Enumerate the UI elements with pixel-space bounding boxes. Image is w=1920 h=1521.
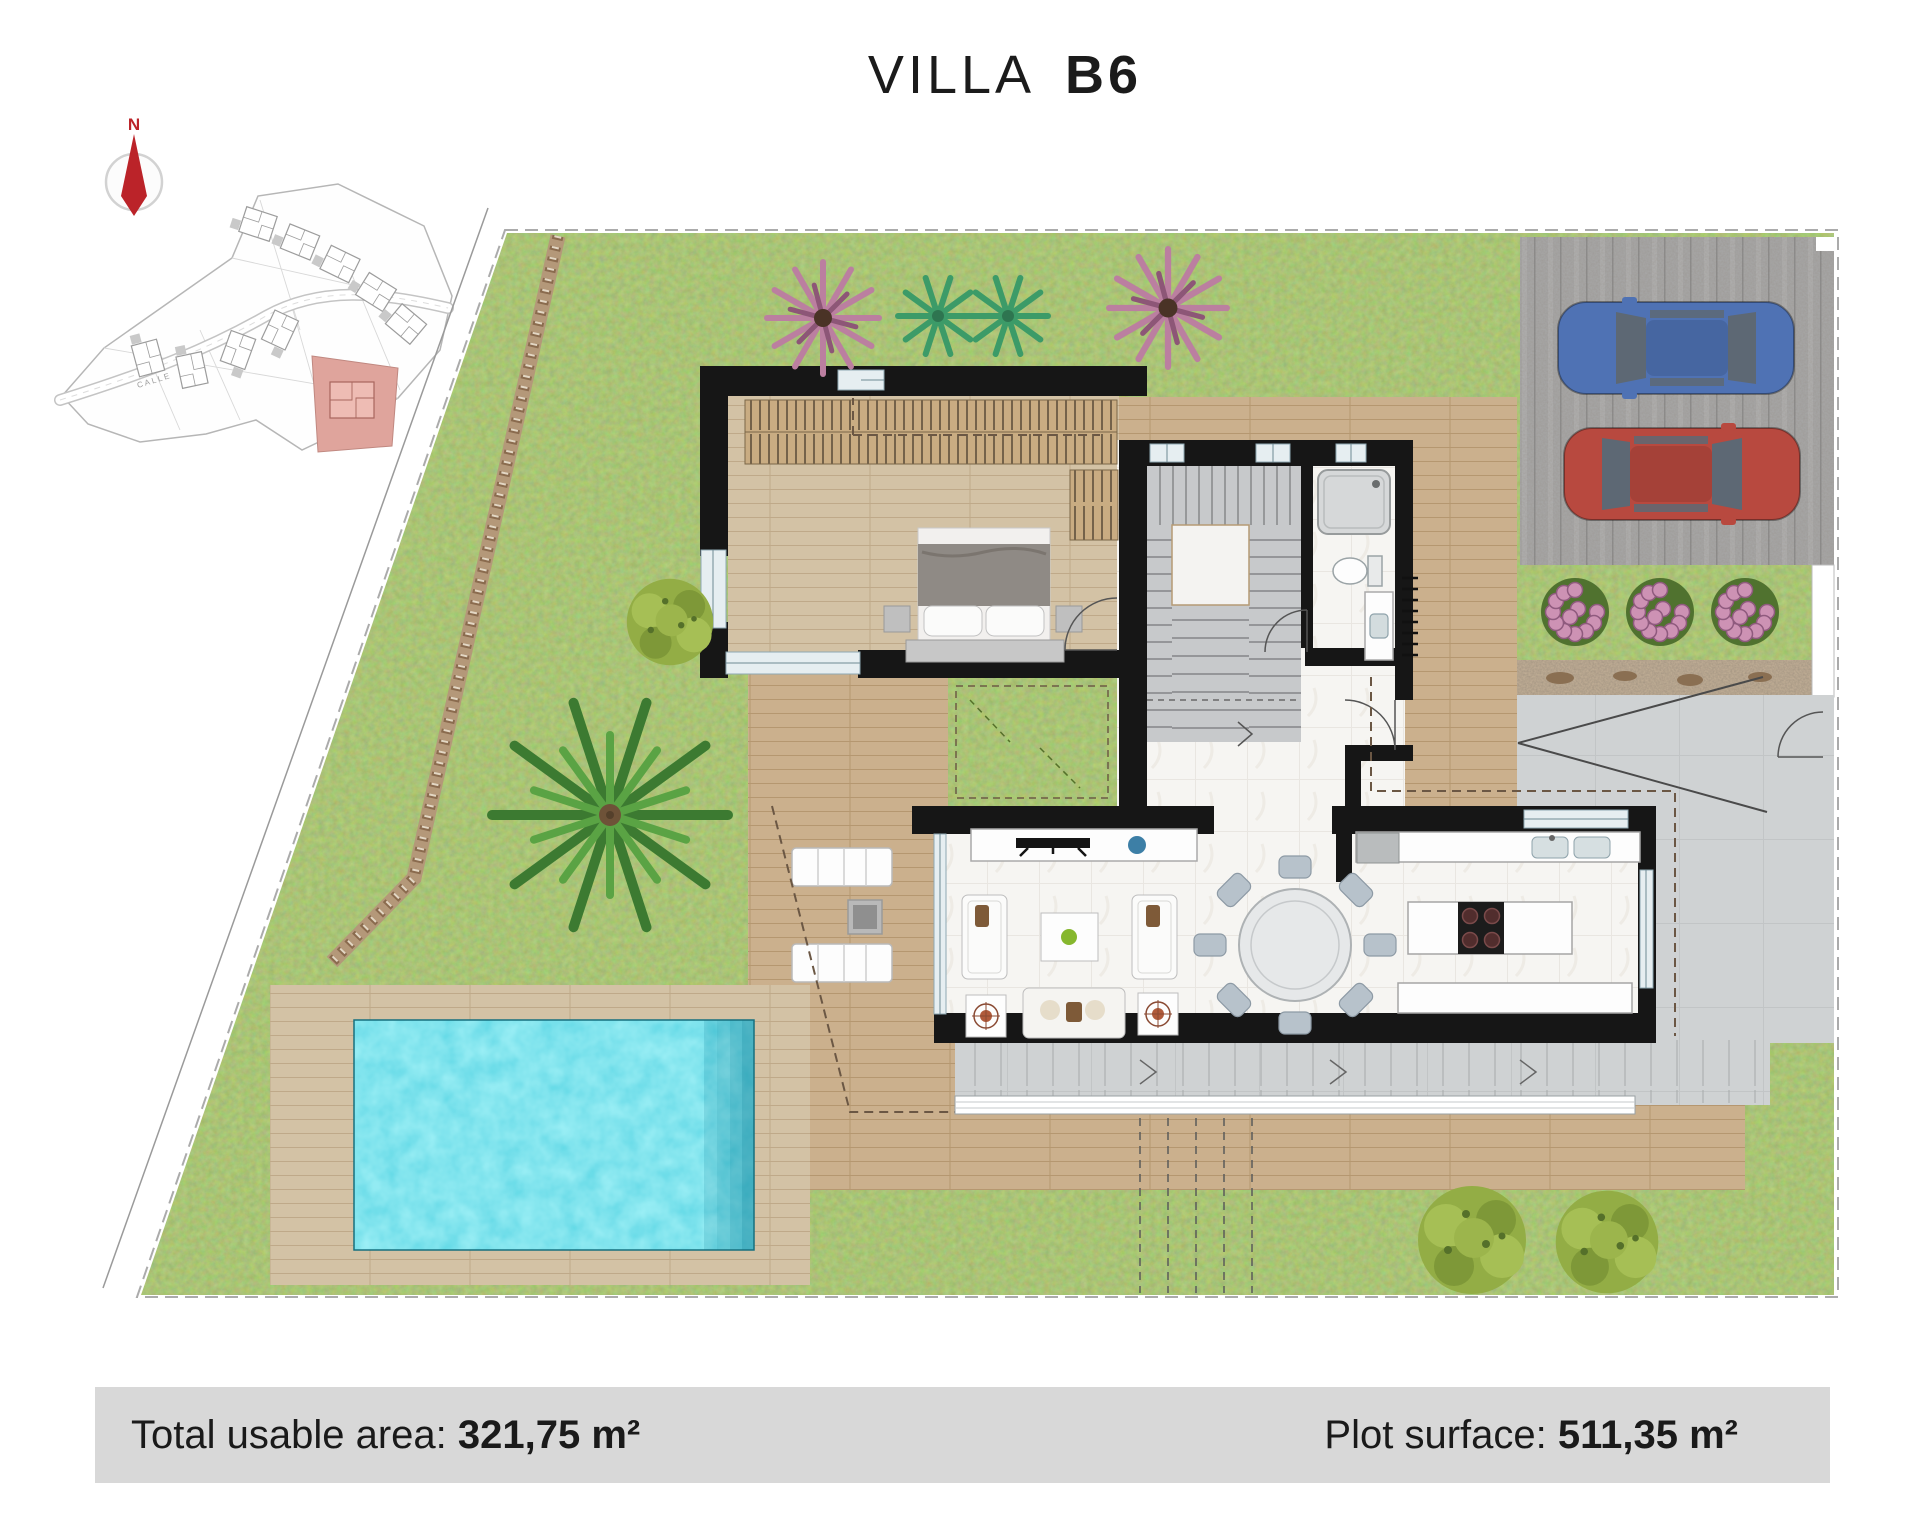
side-table-left — [966, 995, 1006, 1037]
gravel-strip — [1517, 660, 1812, 696]
boundary-wall-strip — [1812, 565, 1834, 697]
bed-end-bench — [906, 640, 1064, 662]
total-usable-area-label: Total usable area: — [131, 1413, 458, 1457]
parking-corner-notch — [1816, 237, 1834, 251]
garden-bush — [1418, 1186, 1526, 1294]
pool-steps — [704, 1020, 754, 1250]
coffee-table — [1041, 913, 1098, 961]
area-summary-bar: Total usable area: 321,75 m² Plot surfac… — [95, 1387, 1830, 1483]
tv-sideboard — [971, 829, 1197, 861]
side-table-right — [1138, 993, 1178, 1035]
compass-n-label: N — [128, 115, 140, 134]
car-red — [1564, 423, 1800, 525]
garden-bush — [627, 579, 713, 665]
kitchen-island — [1408, 902, 1572, 954]
parking-area — [1520, 237, 1834, 565]
total-usable-area-value: 321,75 m² — [458, 1413, 640, 1457]
total-usable-area: Total usable area: 321,75 m² — [131, 1413, 640, 1458]
inner-courtyard — [948, 678, 1117, 806]
fridge — [1357, 833, 1399, 863]
deck-south-strip — [955, 1105, 1745, 1190]
shower-tray — [1318, 470, 1390, 534]
double-bed — [918, 528, 1050, 640]
staircase — [1147, 466, 1301, 746]
site-map-highlighted-plot — [312, 356, 398, 452]
nightstand — [884, 606, 910, 632]
plot-surface-label: Plot surface: — [1324, 1413, 1557, 1457]
lower-window-sill — [955, 1096, 1635, 1114]
stair-landing — [1172, 525, 1249, 605]
compass-north-indicator: N — [106, 115, 162, 216]
site-plan-drawing: N CALLE — [0, 0, 1920, 1521]
development-site-map: CALLE — [60, 184, 452, 452]
plot-surface: Plot surface: 511,35 m² — [1324, 1413, 1738, 1458]
swimming-pool — [354, 1020, 754, 1250]
kitchen-counter-bottom — [1398, 983, 1632, 1013]
lounge-sofa — [1023, 988, 1125, 1038]
garden-bush — [1556, 1191, 1659, 1294]
bathroom-vanity — [1365, 592, 1393, 660]
car-blue — [1558, 297, 1794, 399]
toilet — [1333, 556, 1382, 586]
dining-table — [1239, 889, 1351, 1001]
plot-surface-value: 511,35 m² — [1558, 1413, 1738, 1457]
floor-plan-page: VILLAB6 — [0, 0, 1920, 1521]
decor-vase — [1128, 836, 1146, 854]
flower-bed-strip — [1541, 578, 1779, 646]
kitchen-sink — [1574, 837, 1610, 858]
living-room-furniture — [962, 829, 1197, 1038]
